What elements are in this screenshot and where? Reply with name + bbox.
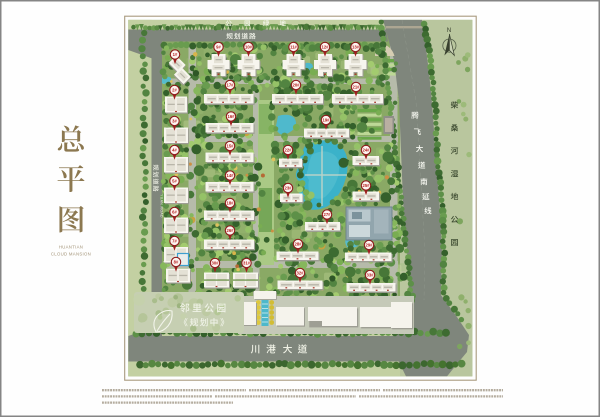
svg-text:HUANTIAN: HUANTIAN <box>59 245 83 250</box>
svg-text:18#: 18# <box>227 201 235 206</box>
svg-text:25#: 25# <box>363 183 371 188</box>
svg-text:23#: 23# <box>285 186 293 191</box>
svg-text:32#: 32# <box>297 271 305 276</box>
svg-text:29#: 29# <box>366 243 374 248</box>
svg-text:3#: 3# <box>172 119 177 124</box>
svg-text:28#: 28# <box>295 242 303 247</box>
svg-text:9#: 9# <box>216 45 221 50</box>
svg-text:10#: 10# <box>245 45 253 50</box>
svg-text:11#: 11# <box>290 45 297 50</box>
svg-text:5#: 5# <box>172 179 177 184</box>
svg-text:4#: 4# <box>172 148 177 153</box>
svg-text:15#: 15# <box>227 144 235 149</box>
svg-text:24#: 24# <box>363 148 371 153</box>
svg-text:16#: 16# <box>228 114 236 119</box>
svg-text:31#: 31# <box>243 261 251 266</box>
svg-text:21#: 21# <box>353 85 361 90</box>
svg-text:2#: 2# <box>172 88 177 93</box>
svg-text:YUAN ROAD: YUAN ROAD <box>160 194 164 218</box>
svg-text:6#: 6# <box>172 210 177 215</box>
svg-text:14#: 14# <box>227 173 235 178</box>
svg-text:N: N <box>447 27 451 34</box>
svg-text:20#: 20# <box>293 83 301 88</box>
svg-text:30#: 30# <box>212 261 220 266</box>
svg-text:1#: 1# <box>173 52 178 57</box>
svg-text:27#: 27# <box>324 212 332 217</box>
svg-text:33#: 33# <box>367 273 375 278</box>
svg-text:26#: 26# <box>227 228 235 233</box>
svg-text:13#: 13# <box>352 45 360 50</box>
svg-text:8#: 8# <box>174 260 179 265</box>
svg-text:12#: 12# <box>322 45 330 50</box>
svg-text:22#: 22# <box>285 148 293 153</box>
svg-text:17#: 17# <box>227 83 235 88</box>
svg-text:CLOUD MANSION: CLOUD MANSION <box>51 252 91 257</box>
svg-text:7#: 7# <box>172 239 177 244</box>
svg-text:19#: 19# <box>323 118 331 123</box>
